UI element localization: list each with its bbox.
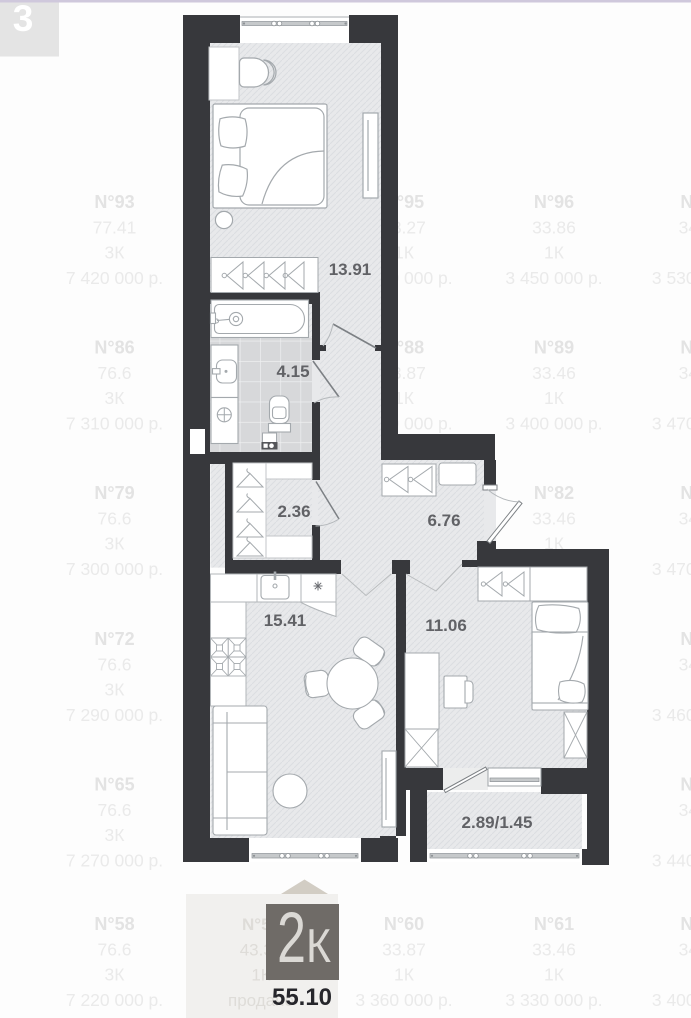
svg-text:3К: 3К [105,534,126,554]
svg-text:3 450 000 р.: 3 450 000 р. [505,268,602,288]
svg-text:2.89/1.45: 2.89/1.45 [462,813,533,832]
svg-text:3 470 000 р.: 3 470 000 р. [652,414,691,434]
svg-text:13.91: 13.91 [329,260,372,279]
svg-text:N°96: N°96 [534,192,574,212]
svg-text:7 270 000 р.: 7 270 000 р. [66,851,163,871]
svg-text:3 470 000 р.: 3 470 000 р. [652,559,691,579]
svg-text:3К: 3К [105,680,126,700]
svg-text:7 290 000 р.: 7 290 000 р. [66,705,163,725]
svg-text:N°97: N°97 [680,192,691,212]
svg-text:34.71: 34.71 [679,800,691,820]
svg-text:3 400 000 р.: 3 400 000 р. [505,414,602,434]
svg-text:7 300 000 р.: 7 300 000 р. [66,559,163,579]
svg-text:3 460 000 р.: 3 460 000 р. [652,705,691,725]
svg-text:55.10: 55.10 [272,984,332,1011]
svg-text:34.71: 34.71 [679,655,691,675]
svg-text:76.6: 76.6 [97,800,131,820]
svg-text:1К: 1К [544,965,565,985]
svg-text:N°69: N°69 [680,775,691,795]
svg-text:1К: 1К [394,965,415,985]
svg-text:N°72: N°72 [94,629,134,649]
svg-text:76.6: 76.6 [97,509,131,529]
svg-text:1К: 1К [544,388,565,408]
svg-text:N°61: N°61 [534,914,574,934]
svg-text:N°79: N°79 [94,483,134,503]
svg-text:3К: 3К [105,965,126,985]
svg-text:3К: 3К [105,388,126,408]
svg-text:1К: 1К [544,243,565,263]
svg-text:3К: 3К [105,243,126,263]
svg-text:4.15: 4.15 [276,362,309,381]
svg-text:34.71: 34.71 [679,363,691,383]
svg-text:7 220 000 р.: 7 220 000 р. [66,990,163,1010]
svg-text:К: К [306,919,332,972]
svg-text:N°76: N°76 [680,629,691,649]
svg-text:N°60: N°60 [384,914,424,934]
svg-text:3К: 3К [105,825,126,845]
svg-text:15.41: 15.41 [264,611,307,630]
svg-text:11.06: 11.06 [425,616,467,635]
svg-text:3 440 000 р.: 3 440 000 р. [652,851,691,871]
svg-text:33.46: 33.46 [532,509,576,529]
svg-text:34.71: 34.71 [679,940,691,960]
svg-text:7 310 000 р.: 7 310 000 р. [66,414,163,434]
svg-text:2.36: 2.36 [277,502,310,521]
svg-text:33.86: 33.86 [532,218,576,238]
svg-text:33.87: 33.87 [382,940,426,960]
svg-text:N°86: N°86 [94,338,134,358]
svg-text:33.46: 33.46 [532,940,576,960]
svg-text:N°83: N°83 [680,483,691,503]
svg-text:34.71: 34.71 [679,218,691,238]
svg-text:76.6: 76.6 [97,363,131,383]
svg-text:N°58: N°58 [94,914,134,934]
svg-text:6.76: 6.76 [427,511,460,530]
svg-text:N°82: N°82 [534,483,574,503]
svg-text:2: 2 [277,899,306,978]
svg-text:77.41: 77.41 [93,218,137,238]
svg-text:N°62: N°62 [680,914,691,934]
svg-text:76.6: 76.6 [97,940,131,960]
svg-text:76.6: 76.6 [97,655,131,675]
svg-text:3 330 000 р.: 3 330 000 р. [505,990,602,1010]
svg-text:3 400 000 р.: 3 400 000 р. [652,990,691,1010]
svg-text:33.46: 33.46 [532,363,576,383]
svg-text:3 360 000 р.: 3 360 000 р. [355,990,452,1010]
svg-text:7 420 000 р.: 7 420 000 р. [66,268,163,288]
svg-text:34.71: 34.71 [679,509,691,529]
svg-text:3 530 000 р.: 3 530 000 р. [652,268,691,288]
svg-text:3: 3 [13,0,34,39]
svg-text:N°65: N°65 [94,775,134,795]
svg-text:N°89: N°89 [534,338,574,358]
svg-text:N°93: N°93 [94,192,134,212]
svg-text:N°90: N°90 [680,338,691,358]
